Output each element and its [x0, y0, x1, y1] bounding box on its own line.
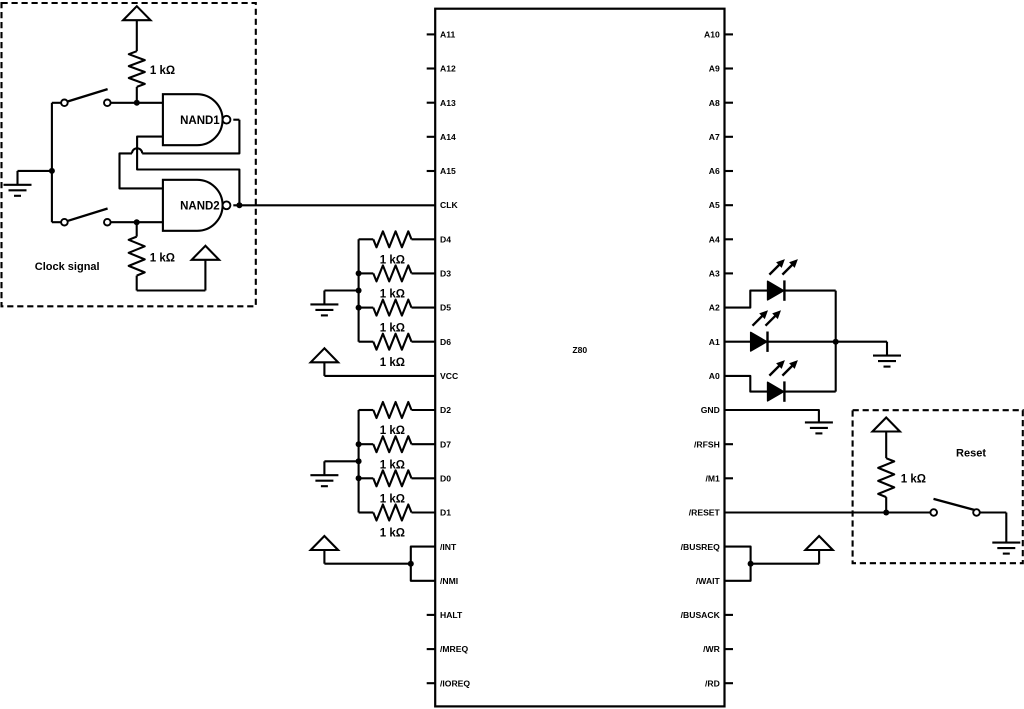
svg-text:A8: A8	[709, 98, 720, 108]
svg-text:D0: D0	[440, 473, 451, 483]
svg-text:A1: A1	[709, 337, 720, 347]
svg-text:/M1: /M1	[705, 473, 720, 483]
svg-text:/RD: /RD	[705, 678, 720, 688]
svg-text:D3: D3	[440, 269, 451, 279]
svg-text:Z80: Z80	[572, 345, 587, 355]
svg-text:NAND1: NAND1	[180, 115, 220, 127]
svg-text:D4: D4	[440, 234, 451, 244]
svg-text:D5: D5	[440, 303, 451, 313]
svg-text:HALT: HALT	[440, 610, 463, 620]
svg-text:A7: A7	[709, 132, 720, 142]
svg-text:D7: D7	[440, 439, 451, 449]
svg-text:D1: D1	[440, 508, 451, 518]
svg-text:1 kΩ: 1 kΩ	[380, 357, 405, 369]
svg-text:CLK: CLK	[440, 200, 458, 210]
svg-text:A0: A0	[709, 371, 720, 381]
svg-text:A4: A4	[709, 234, 720, 244]
svg-text:A15: A15	[440, 166, 456, 176]
svg-text:A12: A12	[440, 64, 456, 74]
svg-text:A14: A14	[440, 132, 456, 142]
svg-text:A10: A10	[704, 30, 720, 40]
svg-text:A9: A9	[709, 64, 720, 74]
svg-text:A5: A5	[709, 200, 720, 210]
svg-text:/WR: /WR	[703, 644, 720, 654]
svg-text:D6: D6	[440, 337, 451, 347]
svg-text:/BUSREQ: /BUSREQ	[681, 542, 720, 552]
svg-text:1 kΩ: 1 kΩ	[901, 474, 926, 486]
svg-text:1 kΩ: 1 kΩ	[380, 493, 405, 505]
svg-text:A2: A2	[709, 303, 720, 313]
svg-text:A6: A6	[709, 166, 720, 176]
svg-text:1 kΩ: 1 kΩ	[150, 252, 175, 264]
svg-text:A11: A11	[440, 30, 456, 40]
svg-text:A3: A3	[709, 269, 720, 279]
svg-text:D2: D2	[440, 405, 451, 415]
svg-text:VCC: VCC	[440, 371, 458, 381]
svg-text:/RFSH: /RFSH	[694, 439, 720, 449]
svg-text:/WAIT: /WAIT	[696, 576, 721, 586]
svg-text:Reset: Reset	[956, 448, 986, 460]
svg-text:/INT: /INT	[440, 542, 457, 552]
svg-text:1 kΩ: 1 kΩ	[380, 528, 405, 540]
svg-text:A13: A13	[440, 98, 456, 108]
svg-text:/NMI: /NMI	[440, 576, 458, 586]
svg-text:/BUSACK: /BUSACK	[681, 610, 721, 620]
svg-text:/RESET: /RESET	[689, 508, 721, 518]
svg-text:/MREQ: /MREQ	[440, 644, 468, 654]
svg-text:Clock signal: Clock signal	[35, 261, 100, 273]
svg-text:/IOREQ: /IOREQ	[440, 678, 470, 688]
svg-text:1 kΩ: 1 kΩ	[150, 65, 175, 77]
svg-text:1 kΩ: 1 kΩ	[380, 425, 405, 437]
svg-text:GND: GND	[701, 405, 720, 415]
svg-text:NAND2: NAND2	[180, 200, 220, 212]
